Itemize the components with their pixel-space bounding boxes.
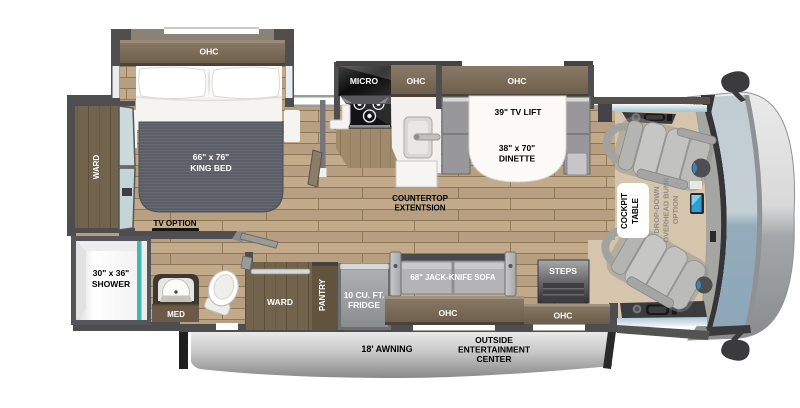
svg-text:FRIDGE: FRIDGE [348,300,380,310]
svg-text:WARD: WARD [92,155,101,180]
svg-text:66" x 76": 66" x 76" [193,152,229,162]
svg-text:OPTION: OPTION [671,196,680,224]
svg-text:OHC: OHC [407,76,426,86]
svg-text:MICRO: MICRO [350,76,379,86]
svg-text:OHC: OHC [439,308,458,318]
svg-text:18' AWNING: 18' AWNING [361,344,412,354]
svg-text:OHC: OHC [200,47,219,57]
svg-text:OHC: OHC [554,311,573,321]
svg-text:TV OPTION: TV OPTION [153,219,196,228]
svg-text:STEPS: STEPS [549,266,577,276]
svg-text:38" x 70": 38" x 70" [499,143,535,153]
svg-text:COCKPIT: COCKPIT [620,193,629,229]
svg-text:KING BED: KING BED [190,163,232,173]
svg-text:30" x 36": 30" x 36" [93,268,129,278]
svg-text:PANTRY: PANTRY [318,278,327,311]
svg-text:TABLE: TABLE [631,197,640,224]
svg-text:COUNTERTOP: COUNTERTOP [392,194,449,203]
svg-text:ENTERTAINMENT: ENTERTAINMENT [458,345,531,355]
svg-text:39" TV LIFT: 39" TV LIFT [494,107,542,117]
svg-text:EXTENTSION: EXTENTSION [394,204,445,213]
svg-text:10 CU. FT.: 10 CU. FT. [344,290,385,300]
svg-text:CENTER: CENTER [477,354,512,364]
svg-text:DINETTE: DINETTE [499,154,536,164]
svg-text:DROP-DOWN: DROP-DOWN [652,186,661,233]
svg-text:SHOWER: SHOWER [92,279,130,289]
svg-text:OVERHEAD BUNK: OVERHEAD BUNK [662,177,671,243]
svg-text:MED: MED [167,310,185,319]
svg-text:OHC: OHC [508,76,527,86]
svg-text:WARD: WARD [267,297,293,307]
svg-text:68" JACK-KNIFE SOFA: 68" JACK-KNIFE SOFA [410,273,496,282]
svg-text:OUTSIDE: OUTSIDE [475,335,513,345]
